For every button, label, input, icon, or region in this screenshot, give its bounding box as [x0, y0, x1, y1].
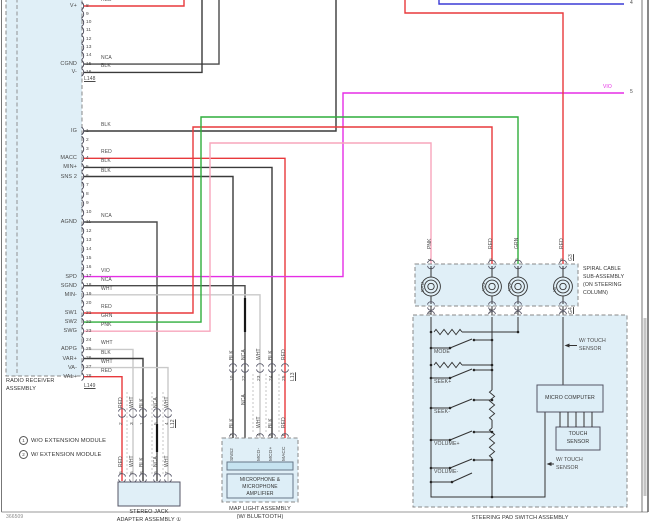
wire-ig-offpage-red [405, 0, 563, 265]
pin-label: CGND [45, 61, 77, 67]
wire-macc-red [84, 158, 285, 463]
wire-color-label: BLK [101, 169, 111, 175]
junction-pin-number: 2 [119, 422, 124, 425]
wire-color-label: NCA [242, 394, 248, 405]
pin-number: 17 [86, 274, 92, 279]
wire-color-label: RED [560, 238, 566, 249]
wire-color-label: BLK [101, 123, 111, 129]
pin-number: 6 [86, 174, 89, 179]
wire-spd-vio [84, 93, 624, 277]
junction-dot [491, 369, 494, 372]
component-label: TOUCH [556, 432, 600, 438]
pin-number: 12 [86, 37, 92, 42]
wire-color-label: RED [101, 0, 112, 4]
entry-pin-number: 8 [140, 471, 145, 474]
switch-label: VOLUME- [434, 470, 458, 476]
wire-color-label: RED [101, 369, 112, 375]
junction-pin-number: 5 [154, 422, 159, 425]
pin-number: 16 [86, 265, 92, 270]
pin-label: SNS 2 [45, 174, 77, 180]
pin-number: 18 [86, 283, 92, 288]
wire-color-label: NCA [101, 278, 112, 284]
pin-label: VAR+ [45, 356, 77, 362]
wire-color-label: WHT [165, 455, 171, 467]
wire-ig-blk [84, 0, 336, 131]
switch-label: MODE [434, 350, 450, 356]
wiring-diagram-page: 366509RADIO RECEIVERASSEMBLY8V+RED910111… [0, 0, 650, 529]
coil-label: EAU [421, 282, 426, 292]
junction-dot [491, 496, 494, 499]
wire-color-label: GRN [515, 238, 521, 249]
wire-color-label: NCA [101, 56, 112, 62]
junction-dot [430, 331, 433, 334]
junction-dot [491, 431, 494, 434]
pin-number: 10 [86, 210, 92, 215]
junction-pin-number: 25 [282, 375, 287, 381]
entry-pin-number: 7 [165, 471, 170, 474]
diagram-canvas [0, 0, 650, 529]
wire-color-label: WHT [101, 360, 113, 366]
pin-number: 12 [86, 229, 92, 234]
junction-dot [491, 364, 494, 367]
wire-color-label: RED [119, 397, 125, 408]
pin-number: 7 [560, 311, 565, 314]
wire-color-label: WHT [101, 341, 113, 347]
wire-color-label: BLU [605, 0, 615, 3]
assembly-label: ADAPTER ASSEMBLY ① [89, 517, 209, 523]
entry-pin-number: 3 [230, 433, 235, 436]
wire-color-label: BLK [101, 351, 111, 357]
pin-label: V+ [45, 3, 77, 9]
wire-color-label: NCA [154, 456, 160, 467]
wire-color-label: NCA [154, 397, 160, 408]
entry-pin-number: 6 [119, 471, 124, 474]
touch-note: W/ TOUCH [579, 339, 606, 345]
component-label: SENSOR [556, 440, 600, 446]
component-label: MICROPHONE & [227, 478, 293, 484]
pin-number: 4 [86, 156, 89, 161]
pin-label: VA- [45, 365, 77, 371]
touch-note: SENSOR [579, 347, 602, 353]
pin-label: MCO- [257, 448, 262, 461]
entry-pin-number: 9 [154, 471, 159, 474]
pin-number: 15 [86, 62, 92, 67]
footnote-text: W/O EXTENSION MODULE [31, 438, 106, 444]
wire-color-label: NCA [101, 214, 112, 220]
assembly-label: MAP LIGHT ASSEMBLY [222, 506, 298, 512]
wire-color-label: RED [101, 150, 112, 156]
junction-dot [491, 399, 494, 402]
pin-number: 20 [86, 301, 92, 306]
pin-number: 27 [86, 365, 92, 370]
pin-number: 5 [515, 258, 520, 261]
pin-number: 23 [86, 329, 92, 334]
wire-color-label: WHT [130, 455, 136, 467]
pin-number: 8 [86, 4, 89, 9]
footnote-text: W/ EXTENSION MODULE [31, 452, 102, 458]
stereo-jack-box [118, 482, 180, 506]
assembly-label: SPIRAL CABLE [583, 267, 621, 273]
touch-note: SENSOR [556, 466, 579, 472]
wire-color-label: RED [282, 417, 288, 428]
pin-number: 8 [428, 311, 433, 314]
pin-number: 19 [86, 292, 92, 297]
junction-dot [491, 459, 494, 462]
pin-label: MACC [282, 446, 287, 461]
pin-number: 13 [86, 45, 92, 50]
map-light-connector-bar [227, 462, 293, 470]
entry-pin-number: 5 [130, 471, 135, 474]
pin-label: IG [45, 128, 77, 134]
coil-label: AU2 [508, 282, 513, 292]
pin-number: 2 [86, 138, 89, 143]
pin-number: 24 [86, 338, 92, 343]
wire-color-label: RED [282, 349, 288, 360]
pin-label: SW1 [45, 310, 77, 316]
pin-label: SGND [45, 283, 77, 289]
offpage-ref: 4 [630, 1, 633, 7]
pin-label: SNS2 [230, 448, 235, 461]
pin-number: 9 [560, 258, 565, 261]
pin-label: MCO+ [269, 447, 274, 461]
assembly-label: SUB-ASSEMBLY [583, 275, 624, 281]
pin-label: V- [45, 69, 77, 75]
pin-label: AGND [45, 219, 77, 225]
nca-shield-segment [244, 298, 246, 332]
pin-number: 14 [86, 247, 92, 252]
entry-pin-number: 5 [269, 433, 274, 436]
wire-color-label: NCA [242, 349, 248, 360]
pin-number: 14 [86, 53, 92, 58]
pin-label: VAL+ [45, 374, 77, 380]
connector-id: L13 [291, 372, 297, 381]
wire-swg-pnk [84, 143, 431, 331]
pin-label: MIN- [45, 292, 77, 298]
pin-number: 16 [86, 70, 92, 75]
junction-dot [491, 339, 494, 342]
junction-pin-number: 3 [130, 422, 135, 425]
pin-number: 22 [86, 320, 92, 325]
pin-number: 7 [86, 183, 89, 188]
page-edge-shade [644, 318, 647, 496]
coil-label: AU1 [482, 282, 487, 292]
connector-id: G4 [569, 307, 575, 314]
wire-color-label: VIO [603, 85, 612, 91]
wire-color-label: VIO [101, 269, 110, 275]
wire-color-label: RED [101, 305, 112, 311]
wire-color-label: PNK [428, 238, 434, 249]
wire-color-label: WHT [165, 396, 171, 408]
pin-number: 5 [86, 165, 89, 170]
wire-color-label: WHT [130, 396, 136, 408]
connector-id: G3 [569, 254, 575, 261]
switch-label: SEEK+ [434, 380, 451, 386]
pin-number: 9 [515, 311, 520, 314]
diagram-number: 366509 [6, 515, 23, 521]
pin-label: MACC [45, 155, 77, 161]
wire-color-label: PNK [101, 323, 112, 329]
pin-number: 3 [86, 147, 89, 152]
junction-pin-number: 23 [257, 375, 262, 381]
pin-label: SWG [45, 328, 77, 334]
junction-dot [430, 364, 433, 367]
assembly-label: (ON STEERING [583, 283, 622, 289]
pin-number: 10 [489, 308, 494, 314]
assembly-label: ASSEMBLY [6, 386, 36, 392]
pin-number: 25 [86, 347, 92, 352]
pin-number: 9 [86, 12, 89, 17]
component-label: MICRO COMPUTER [537, 396, 603, 402]
pin-number: 15 [86, 256, 92, 261]
switch-label: VOLUME+ [434, 442, 460, 448]
junction-pin-number: 24 [269, 375, 274, 381]
footnote-marker: 1 [19, 436, 28, 445]
connector-id: L148 [84, 77, 96, 83]
connector-id: L12 [171, 419, 177, 428]
assembly-label: STEERING PAD SWITCH ASSEMBLY [413, 515, 627, 521]
pin-number: 11 [86, 28, 91, 33]
pin-number: 10 [86, 20, 92, 25]
wire-color-label: BLK [269, 350, 275, 360]
assembly-label: STEREO JACK [89, 509, 209, 515]
wire-color-label: RED [119, 456, 125, 467]
wire-color-label: WHT [257, 348, 263, 360]
pin-label: SW2 [45, 319, 77, 325]
nca-shield-segment [156, 424, 158, 452]
entry-pin-number: 4 [257, 433, 262, 436]
wire-color-label: BLK [101, 64, 111, 70]
pin-label: SPD [45, 274, 77, 280]
component-label: AMPLIFIER [227, 492, 293, 498]
wire-color-label: BLK [269, 418, 275, 428]
wire-color-label: BLK [101, 159, 111, 165]
pin-label: MIN+ [45, 164, 77, 170]
wire-color-label: BLK [140, 457, 146, 467]
entry-pin-number: 6 [282, 433, 287, 436]
wire-color-label: WHT [101, 287, 113, 293]
wire-color-label: BLK [230, 418, 236, 428]
wire-color-label: GRN [101, 314, 112, 320]
assembly-label: COLUMN) [583, 291, 608, 297]
pin-number: 21 [86, 311, 92, 316]
pin-number: 26 [86, 356, 92, 361]
touch-note: W/ TOUCH [556, 458, 583, 464]
wire-color-label: RED [489, 238, 495, 249]
wire-valplus-red [84, 377, 122, 481]
switch-label: SEEK- [434, 410, 450, 416]
pin-number: 9 [86, 201, 89, 206]
junction-dot [517, 331, 520, 334]
pin-number: 4 [428, 258, 433, 261]
pin-number: 8 [86, 192, 89, 197]
junction-pin-number: 22 [242, 375, 247, 381]
wire-blu-offpage [439, 0, 624, 4]
component-label: MICROPHONE [227, 485, 293, 491]
assembly-label: (W/ BLUETOOTH) [222, 514, 298, 520]
offpage-ref: 5 [630, 90, 633, 96]
junction-pin-number: 10 [230, 375, 235, 381]
footnote-marker: 2 [19, 450, 28, 459]
wire-color-label: BLK [140, 398, 146, 408]
pin-label: ADPG [45, 346, 77, 352]
pin-number: 6 [489, 258, 494, 261]
pin-number: 13 [86, 238, 92, 243]
junction-pin-number: 1 [140, 422, 145, 425]
wire-vplus-red [84, 0, 184, 6]
connector-id: L149 [84, 384, 96, 390]
pin-number: 28 [86, 374, 92, 379]
pin-number: 11 [86, 220, 91, 225]
wire-color-label: WHT [257, 416, 263, 428]
pin-number: 1 [86, 129, 89, 134]
coil-label: IG [553, 287, 558, 292]
wire-color-label: BLK [230, 350, 236, 360]
